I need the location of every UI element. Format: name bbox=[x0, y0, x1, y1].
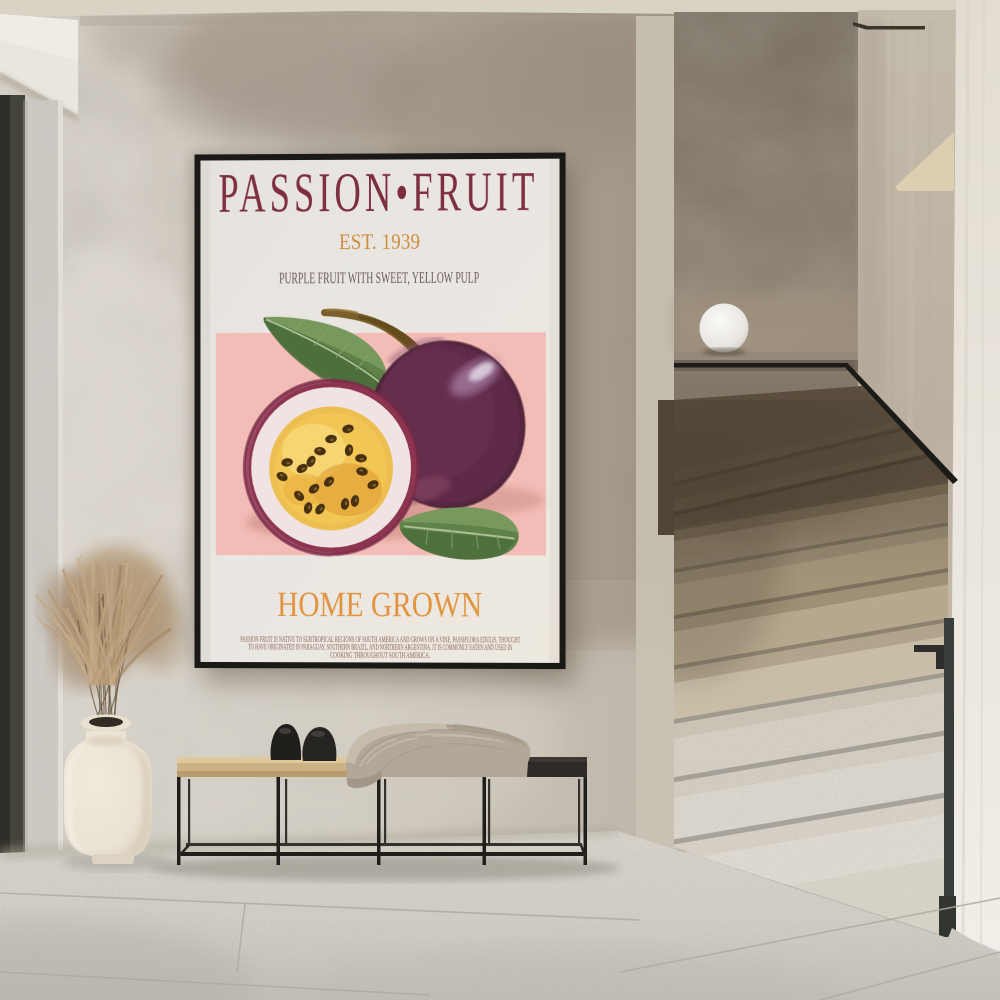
svg-text:HOME GROWN: HOME GROWN bbox=[277, 585, 482, 625]
svg-text:COOKING THROUGHOUT SOUTH AMERI: COOKING THROUGHOUT SOUTH AMERICA. bbox=[330, 651, 430, 660]
svg-text:PASSION•FRUIT: PASSION•FRUIT bbox=[218, 160, 538, 223]
svg-text:PURPLE FRUIT WITH SWEET, YELLO: PURPLE FRUIT WITH SWEET, YELLOW PULP bbox=[279, 270, 479, 288]
svg-text:EST. 1939: EST. 1939 bbox=[339, 229, 420, 255]
